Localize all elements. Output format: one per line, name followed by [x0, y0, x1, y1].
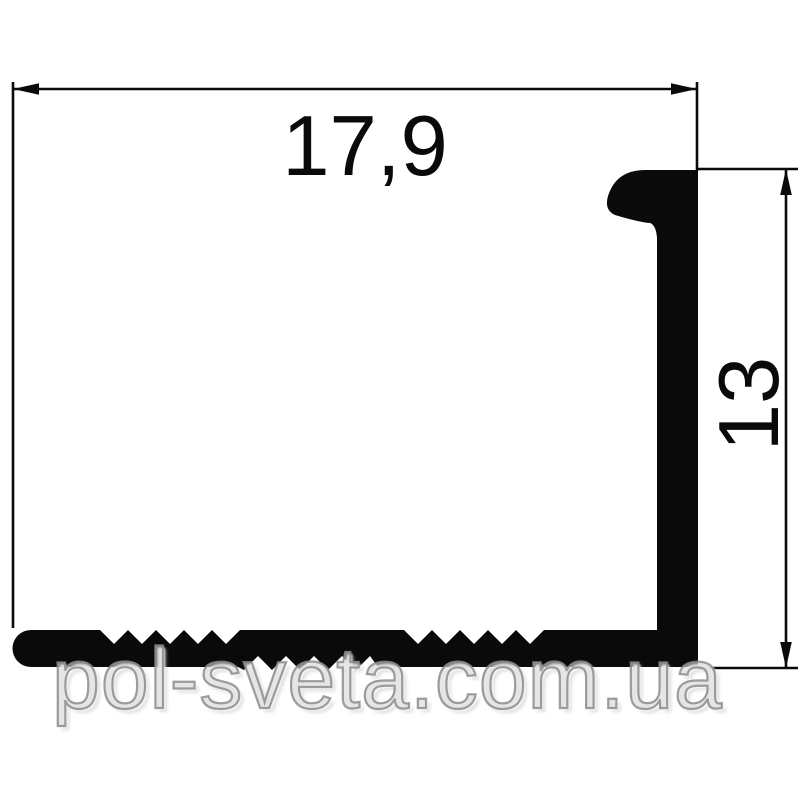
height-dimension-label: 13	[702, 357, 797, 452]
drawing-canvas: 17,9 13 pol-sveta.com.ua	[0, 0, 800, 800]
height-arrow-bottom-icon	[780, 642, 792, 668]
profile-drawing: 17,9 13	[0, 0, 800, 800]
width-arrow-right-icon	[671, 83, 697, 95]
profile-outline	[13, 170, 699, 670]
width-arrow-left-icon	[13, 83, 39, 95]
height-arrow-top-icon	[780, 169, 792, 195]
width-dimension-label: 17,9	[282, 99, 447, 194]
